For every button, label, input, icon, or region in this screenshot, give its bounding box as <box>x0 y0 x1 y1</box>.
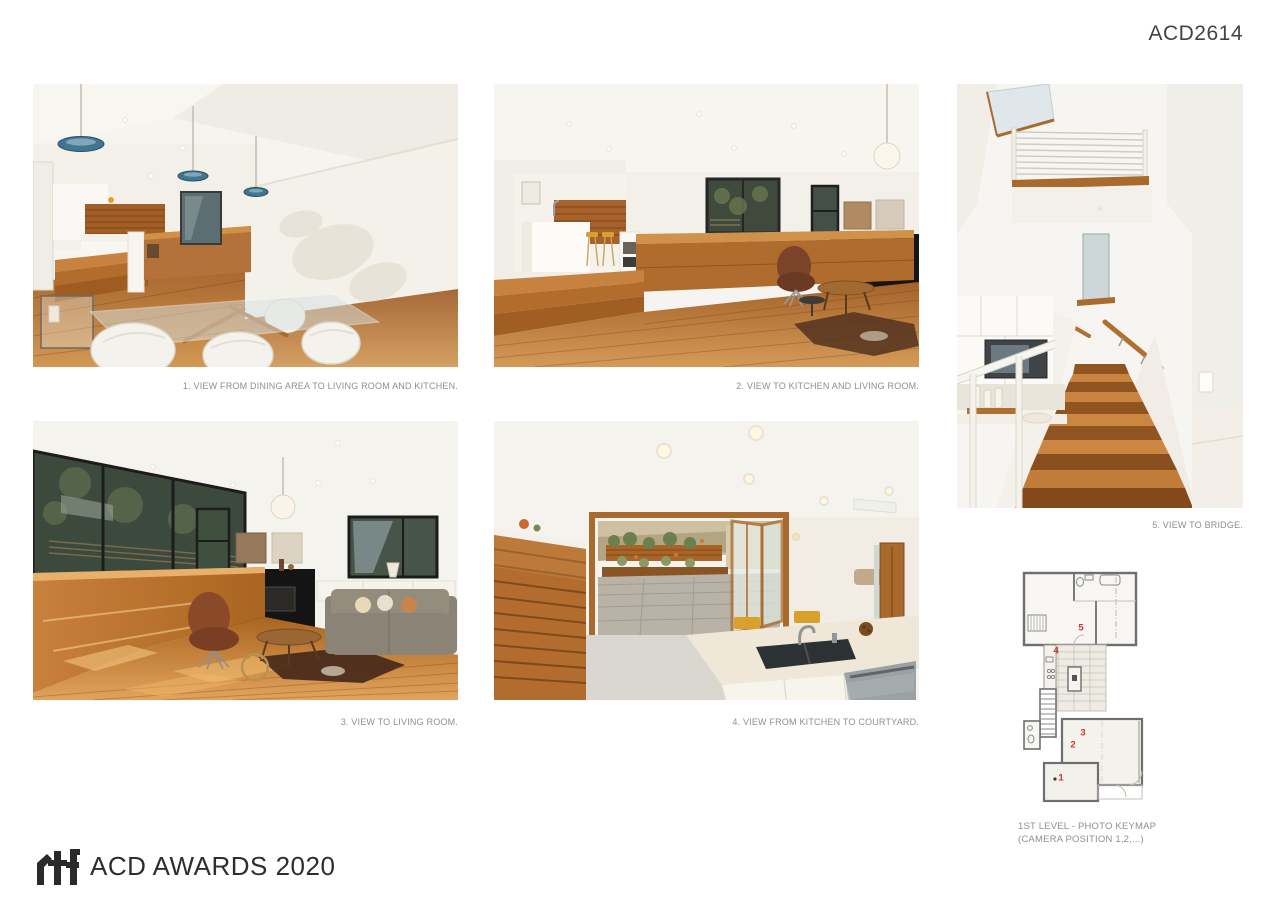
photo-keymap-plan: 1 2 3 4 5 <box>1018 571 1155 803</box>
keymap-marker-1: 1 <box>1058 774 1063 783</box>
caption-photo-3: 3. VIEW TO LIVING ROOM. <box>33 717 458 728</box>
awards-wordmark: ACD AWARDS 2020 <box>90 851 335 882</box>
keymap-caption: 1ST LEVEL - PHOTO KEYMAP (CAMERA POSITIO… <box>1018 820 1218 846</box>
photo-3-living-room <box>33 421 458 700</box>
rtf-logo-icon: rtf <box>33 845 81 887</box>
photo-4-image <box>494 421 919 700</box>
caption-photo-2: 2. VIEW TO KITCHEN AND LIVING ROOM. <box>494 381 919 392</box>
caption-photo-1: 1. VIEW FROM DINING AREA TO LIVING ROOM … <box>33 381 458 392</box>
keymap-plan-drawing <box>1018 571 1155 803</box>
photo-5-image <box>957 84 1243 508</box>
board-id: ACD2614 <box>1148 22 1243 46</box>
photo-5-stair-bridge <box>957 84 1243 508</box>
keymap-marker-3: 3 <box>1080 729 1085 738</box>
keymap-caption-line1: 1ST LEVEL - PHOTO KEYMAP <box>1018 820 1218 833</box>
photo-3-image <box>33 421 458 700</box>
caption-photo-4: 4. VIEW FROM KITCHEN TO COURTYARD. <box>494 717 919 728</box>
photo-2-image <box>494 84 919 367</box>
photo-1-image <box>33 84 458 367</box>
keymap-marker-4: 4 <box>1053 647 1058 656</box>
presentation-board: ACD2614 <box>0 0 1273 900</box>
keymap-caption-line2: (CAMERA POSITION 1,2,...) <box>1018 833 1218 846</box>
caption-photo-5: 5. VIEW TO BRIDGE. <box>957 520 1243 531</box>
keymap-marker-5: 5 <box>1078 624 1083 633</box>
footer-logo: rtf ACD AWARDS 2020 <box>33 845 335 887</box>
photo-4-kitchen-courtyard <box>494 421 919 700</box>
keymap-marker-2: 2 <box>1070 741 1075 750</box>
photo-2-kitchen-living <box>494 84 919 367</box>
rtf-logo-text: rtf <box>33 887 34 888</box>
photo-1-dining-to-living-kitchen <box>33 84 458 367</box>
